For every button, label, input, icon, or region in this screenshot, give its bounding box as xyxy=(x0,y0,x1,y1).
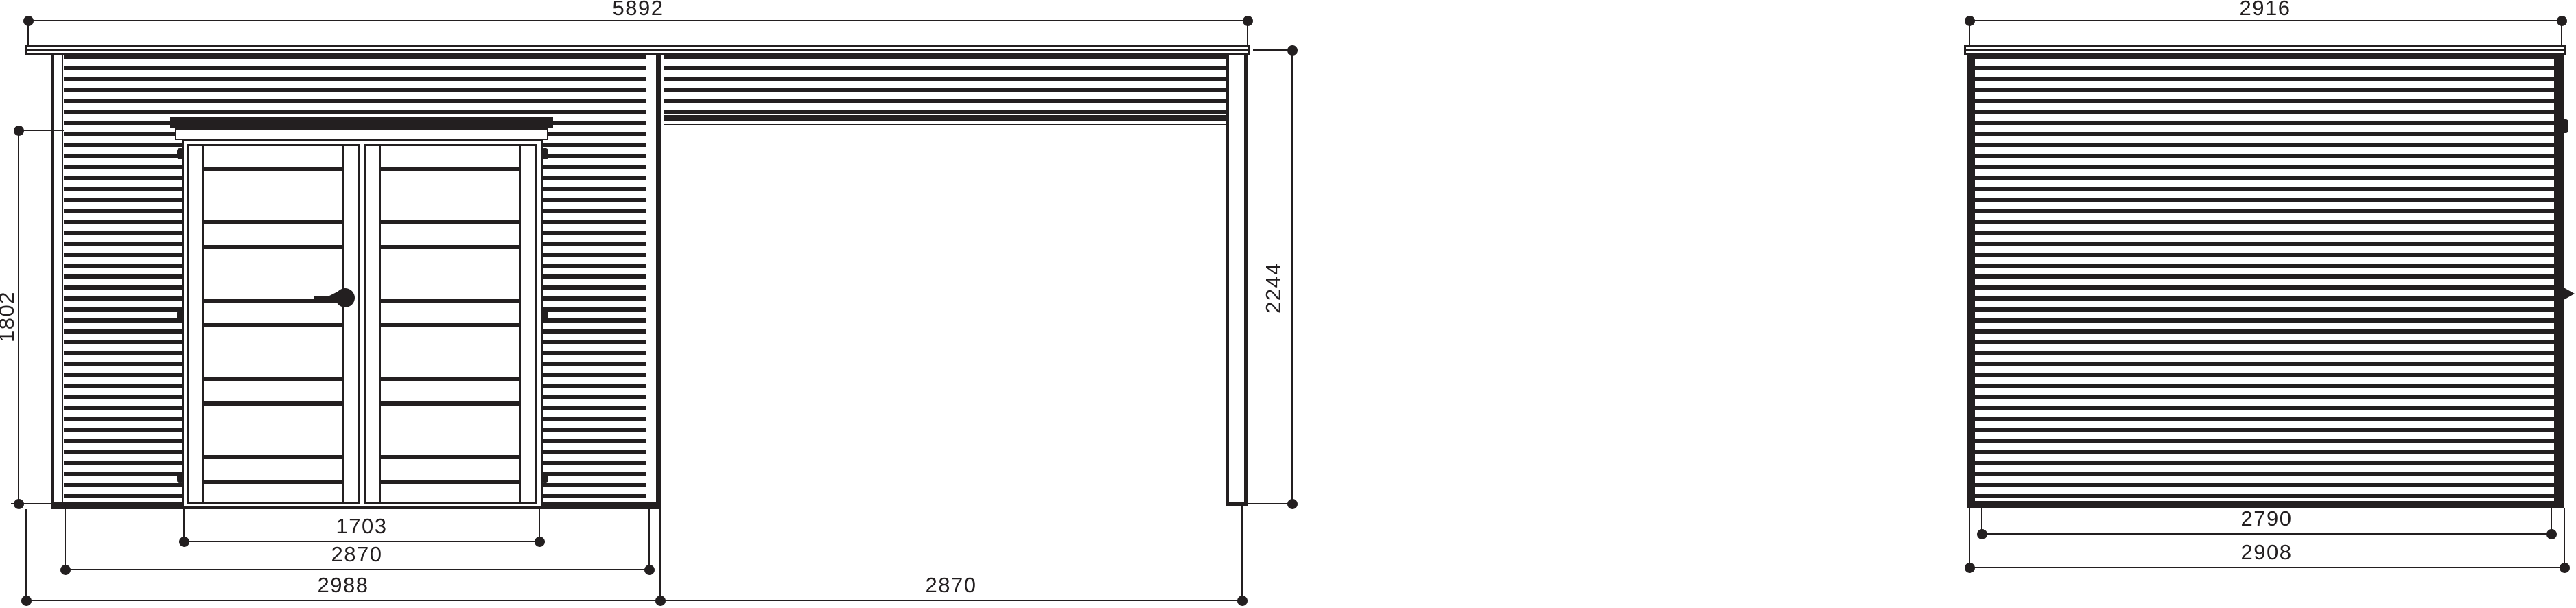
side-wall-left-corner-trim xyxy=(1967,55,1975,508)
dim-dot xyxy=(179,537,189,547)
dim-label-base-depth: 2908 xyxy=(2198,540,2335,565)
door-hinge-edge-icon xyxy=(2562,119,2568,133)
dim-line-canopy-width xyxy=(660,600,1242,601)
dim-label-shed-base-width: 2988 xyxy=(274,573,412,598)
dim-label-overall-width: 5892 xyxy=(570,0,707,21)
door-stile-line xyxy=(519,146,521,502)
door-knob-icon xyxy=(336,288,355,307)
door-hinge-icon xyxy=(177,310,184,321)
dim-label-door-width: 1703 xyxy=(293,514,430,539)
dim-extension-line xyxy=(659,509,661,600)
dim-extension-line xyxy=(25,509,27,600)
dim-extension-line xyxy=(2564,508,2565,568)
dim-label-canopy-width: 2870 xyxy=(882,573,1020,598)
dim-dot xyxy=(2546,529,2557,539)
dim-extension-line xyxy=(1247,23,1248,45)
dim-extension-line xyxy=(1241,506,1243,600)
canopy-fascia-bottom xyxy=(664,115,1226,121)
door-header-bar xyxy=(170,117,553,128)
dim-line-wall-depth xyxy=(1982,533,2552,535)
door-hinge-icon xyxy=(541,148,548,159)
side-wall-siding xyxy=(1975,55,2554,501)
dim-label-shed-wall-width: 2870 xyxy=(288,542,425,567)
dim-dot xyxy=(60,565,71,575)
dim-dot xyxy=(655,596,666,606)
canopy-fascia-slats xyxy=(664,55,1226,115)
roof-cap-inner-line xyxy=(1966,49,2564,51)
corner-trim-line xyxy=(62,55,63,509)
dim-line-canopy-height xyxy=(1291,50,1293,504)
dim-dot xyxy=(2560,563,2570,573)
dim-line-shed-base-width xyxy=(26,600,660,601)
dim-dot xyxy=(1965,563,1975,573)
dim-dot xyxy=(1237,596,1248,606)
dim-extension-line xyxy=(1969,23,1970,45)
dim-dot xyxy=(14,499,24,509)
door-stile-line xyxy=(202,146,204,502)
dim-label-door-height: 1802 xyxy=(0,255,19,379)
door-handle-edge-icon xyxy=(2564,288,2575,300)
dim-extension-line xyxy=(27,23,29,45)
dim-extension-line xyxy=(2561,23,2562,45)
dim-label-wall-depth: 2790 xyxy=(2198,506,2335,531)
dim-extension-line xyxy=(1969,508,1970,568)
canopy-soffit-line xyxy=(664,124,1226,125)
dim-dot xyxy=(1287,45,1298,56)
door-hinge-icon xyxy=(541,310,548,321)
door-hinge-icon xyxy=(177,148,184,159)
drawing-sheet: 5892 xyxy=(0,0,2576,608)
door-stile-line xyxy=(379,146,381,502)
canopy-post xyxy=(1226,55,1248,506)
door-stile-line xyxy=(342,146,344,502)
dim-dot xyxy=(21,596,32,606)
door-leaf-right-panels xyxy=(381,146,519,502)
shed-right-corner-post xyxy=(656,55,661,509)
dim-line-shed-wall-width xyxy=(65,569,649,570)
door-hinge-icon xyxy=(541,472,548,483)
dim-label-overall-depth: 2916 xyxy=(2197,0,2334,21)
dim-leader xyxy=(1248,503,1292,504)
dim-label-canopy-height: 2244 xyxy=(1261,226,1286,350)
dim-dot xyxy=(1287,499,1298,509)
dim-dot xyxy=(1977,529,1987,539)
dim-dot xyxy=(535,537,545,547)
door-leaf-left-panels xyxy=(204,146,342,502)
door-drip-molding xyxy=(175,128,548,140)
dim-extension-line xyxy=(648,509,650,570)
door-hinge-icon xyxy=(177,472,184,483)
dim-dot xyxy=(644,565,655,575)
dim-leader xyxy=(1253,49,1292,51)
dim-dot xyxy=(14,126,24,136)
roof-cap-inner-line xyxy=(27,49,1248,51)
dim-line-base-depth xyxy=(1969,567,2564,568)
dim-leader xyxy=(19,130,64,131)
dim-extension-line xyxy=(65,509,66,570)
wall-left-outline xyxy=(51,55,54,509)
